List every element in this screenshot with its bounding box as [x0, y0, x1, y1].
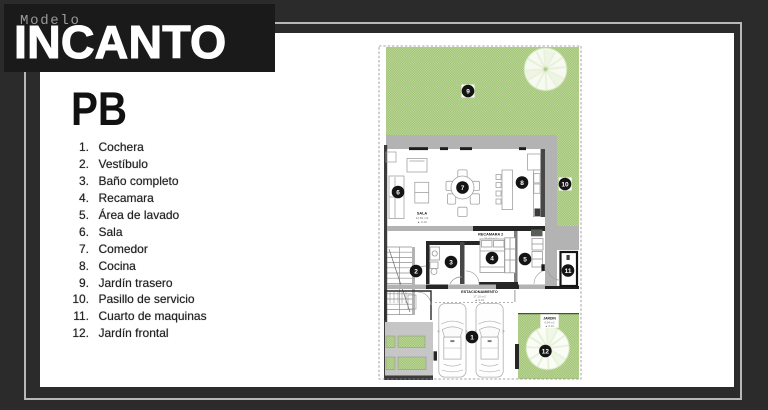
- svg-text:3: 3: [449, 259, 453, 266]
- svg-text:8: 8: [520, 180, 524, 187]
- svg-text:SALA: SALA: [417, 212, 428, 216]
- svg-text:6: 6: [396, 189, 400, 196]
- svg-text:11: 11: [565, 268, 572, 275]
- svg-text:12: 12: [542, 348, 550, 355]
- svg-text:▲ 0.10: ▲ 0.10: [545, 324, 554, 328]
- svg-text:▲ 0.10: ▲ 0.10: [475, 298, 485, 302]
- svg-text:5: 5: [523, 256, 527, 263]
- svg-text:9: 9: [466, 88, 470, 95]
- svg-text:10: 10: [561, 181, 569, 188]
- svg-text:1: 1: [470, 334, 474, 341]
- svg-text:2: 2: [414, 268, 418, 275]
- svg-text:▲ 0.10: ▲ 0.10: [417, 220, 427, 224]
- svg-text:4: 4: [490, 255, 494, 262]
- svg-text:7: 7: [461, 185, 465, 192]
